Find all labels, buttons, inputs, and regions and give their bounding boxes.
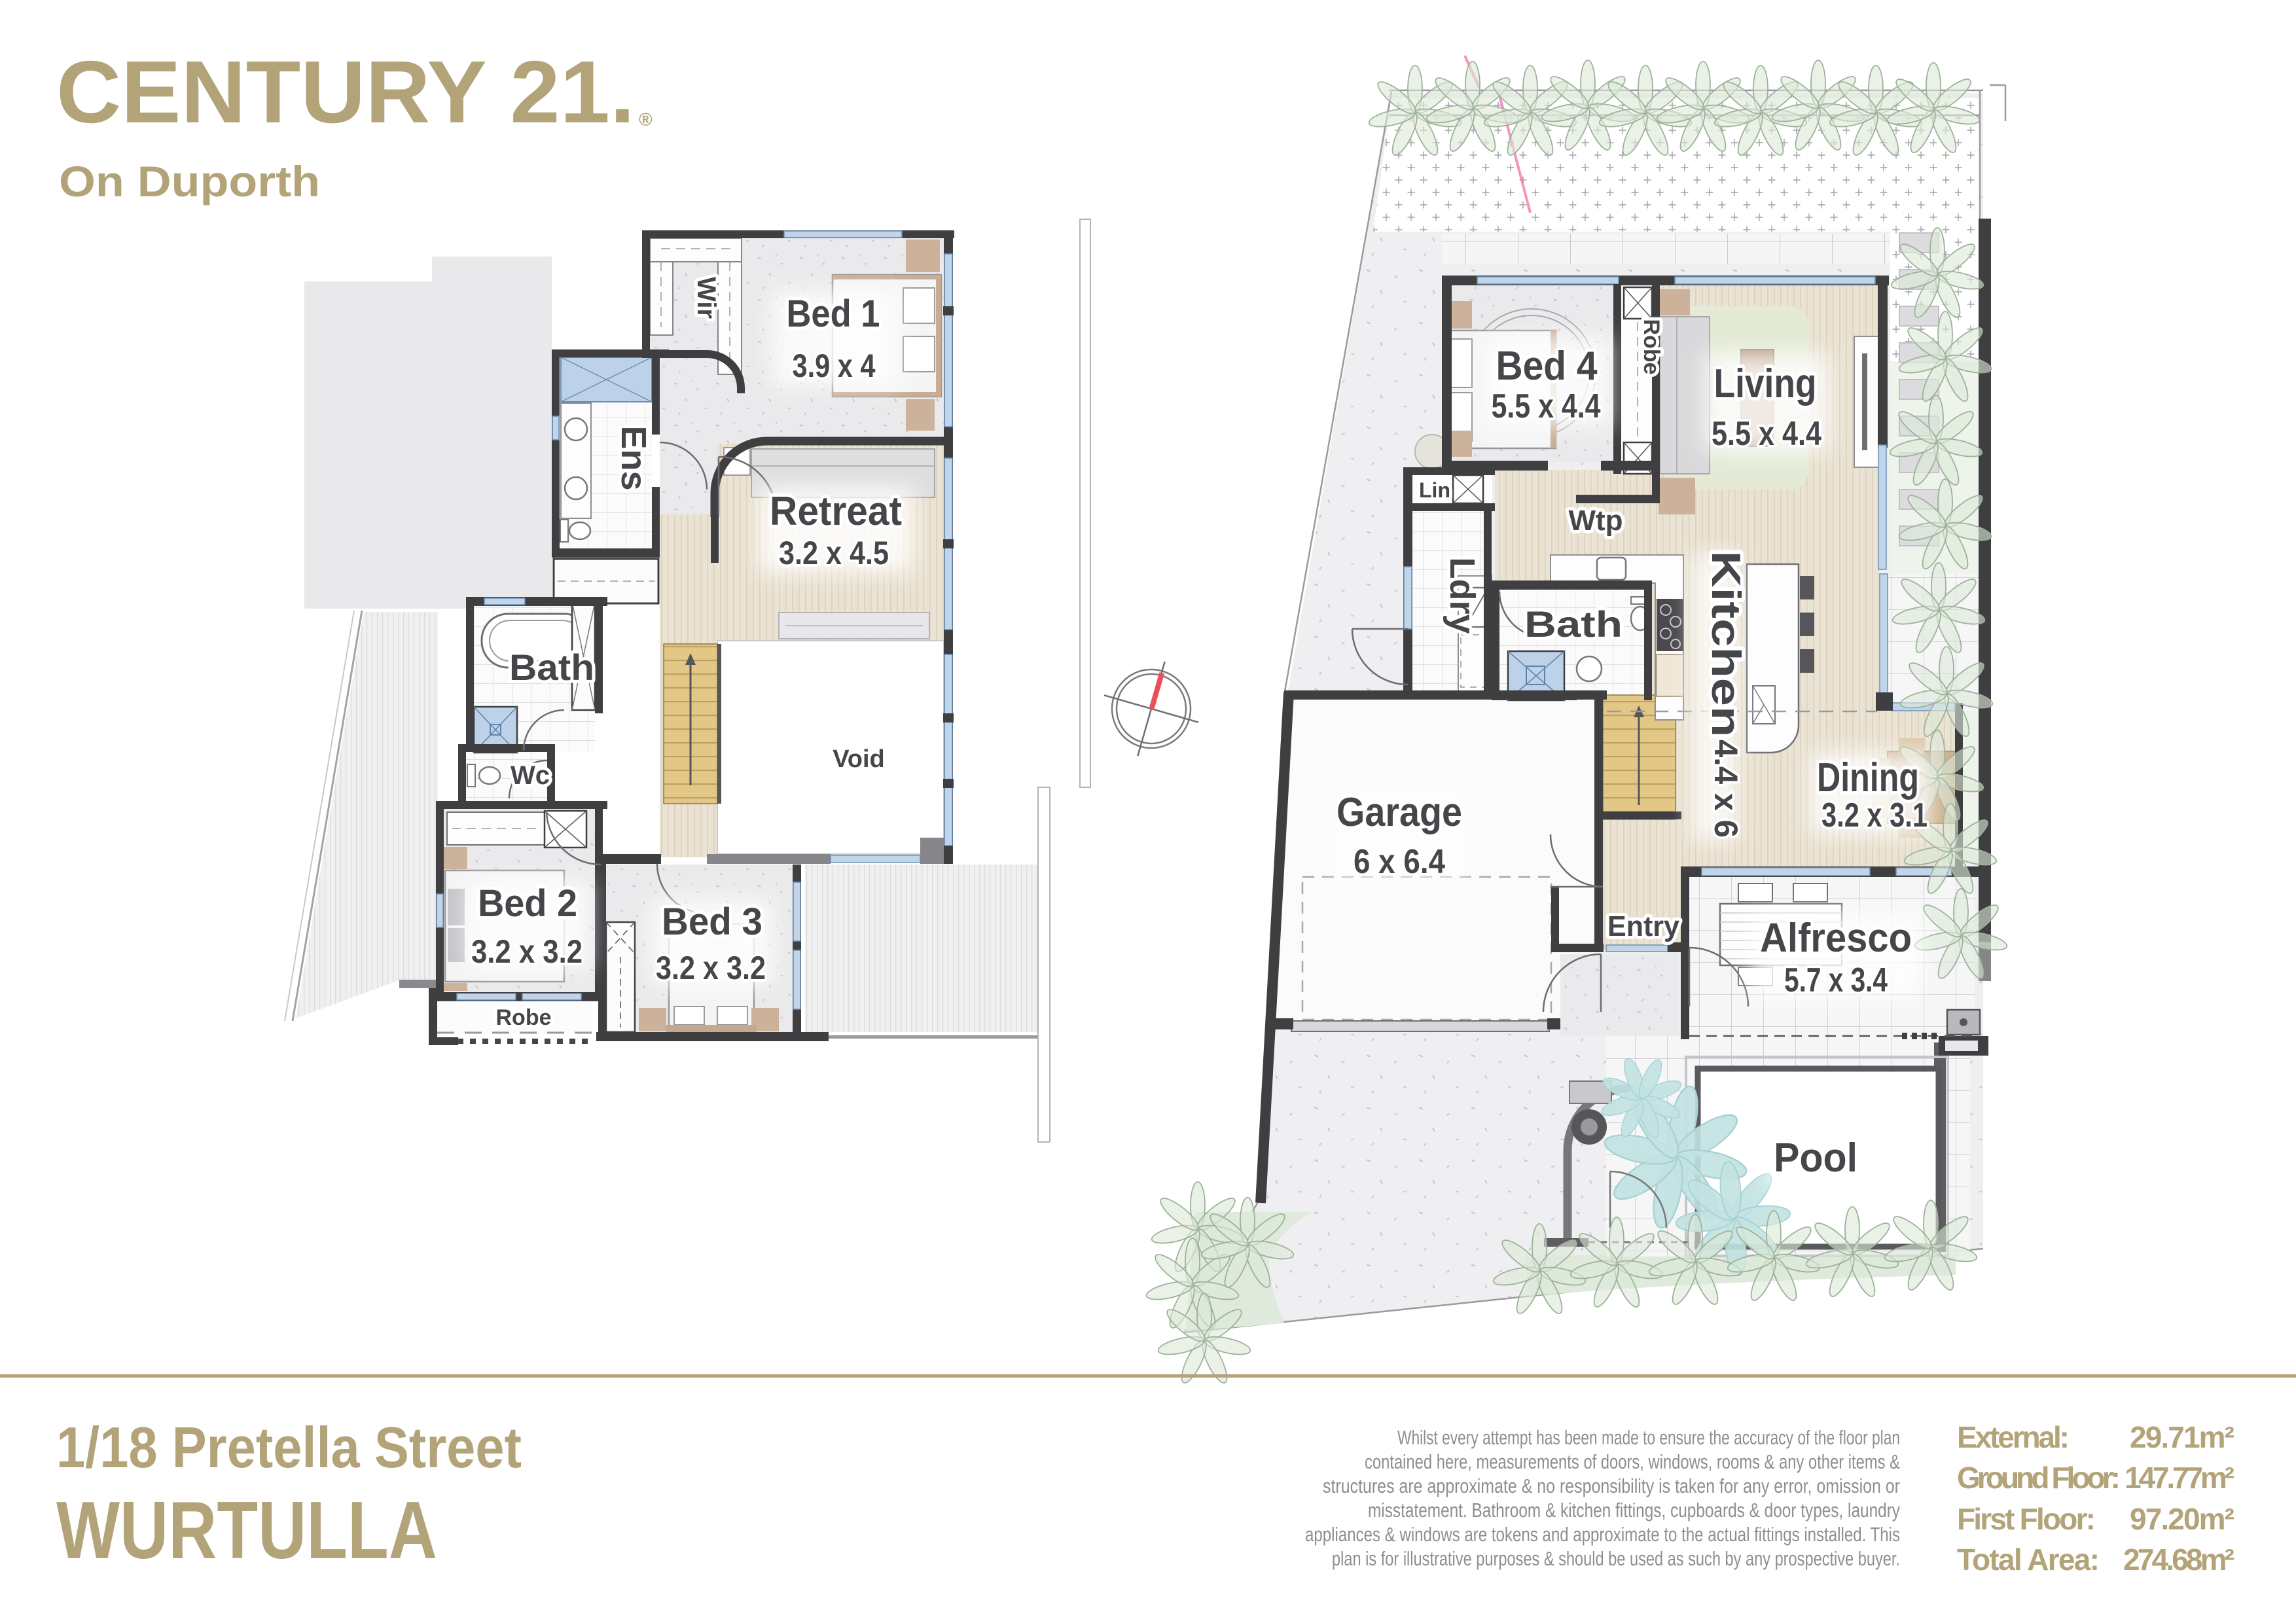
svg-text:structures are approximate & n: structures are approximate & no responsi… <box>1323 1474 1900 1497</box>
svg-text:29.71m²: 29.71m² <box>2130 1420 2234 1454</box>
svg-text:Ens: Ens <box>614 425 653 490</box>
svg-text:Pool: Pool <box>1774 1135 1857 1181</box>
svg-text:Robe: Robe <box>496 1005 552 1030</box>
svg-text:97.20m²: 97.20m² <box>2130 1502 2234 1536</box>
svg-text:First Floor:: First Floor: <box>1957 1502 2096 1536</box>
svg-text:Dining: Dining <box>1817 755 1919 800</box>
svg-text:Robe: Robe <box>1639 319 1664 375</box>
svg-text:Ground Floor:: Ground Floor: <box>1957 1461 2121 1495</box>
svg-text:Total Area:: Total Area: <box>1957 1543 2100 1577</box>
svg-text:Living: Living <box>1714 361 1817 406</box>
svg-text:Retreat: Retreat <box>770 489 902 534</box>
svg-text:On Duporth: On Duporth <box>59 157 320 205</box>
svg-text:Wc: Wc <box>511 761 550 790</box>
svg-text:WURTULLA: WURTULLA <box>56 1486 437 1576</box>
svg-text:Garage: Garage <box>1336 790 1462 835</box>
svg-text:3.2 x 3.2: 3.2 x 3.2 <box>471 933 583 970</box>
svg-text:®: ® <box>639 109 653 130</box>
svg-text:3.2 x 3.1: 3.2 x 3.1 <box>1821 796 1928 834</box>
svg-text:Wtp: Wtp <box>1568 505 1623 537</box>
svg-text:Bed 2: Bed 2 <box>478 882 577 925</box>
svg-text:Bath: Bath <box>509 647 594 688</box>
svg-text:3.2 x 4.5: 3.2 x 4.5 <box>779 535 889 571</box>
svg-text:4.4 x 6: 4.4 x 6 <box>1708 740 1744 838</box>
svg-text:274.68m²: 274.68m² <box>2123 1543 2234 1577</box>
svg-text:Bed 1: Bed 1 <box>787 293 880 335</box>
svg-text:contained here, measurements o: contained here, measurements of doors, w… <box>1365 1450 1900 1473</box>
svg-text:Ldry: Ldry <box>1443 557 1482 633</box>
svg-text:5.5 x 4.4: 5.5 x 4.4 <box>1712 415 1821 453</box>
svg-text:3.2 x 3.2: 3.2 x 3.2 <box>656 950 766 986</box>
svg-text:6 x 6.4: 6 x 6.4 <box>1354 843 1445 881</box>
svg-text:5.5 x 4.4: 5.5 x 4.4 <box>1492 387 1601 425</box>
svg-text:misstatement. Bathroom & kitch: misstatement. Bathroom & kitchen fitting… <box>1368 1499 1900 1522</box>
svg-text:Alfresco: Alfresco <box>1760 916 1912 961</box>
svg-text:Entry: Entry <box>1607 910 1680 942</box>
svg-text:Void: Void <box>833 745 885 773</box>
svg-text:3.9 x 4: 3.9 x 4 <box>793 348 876 384</box>
svg-text:appliances & windows are token: appliances & windows are tokens and appr… <box>1305 1523 1900 1546</box>
svg-text:1/18 Pretella Street: 1/18 Pretella Street <box>56 1415 522 1480</box>
svg-text:Bed 3: Bed 3 <box>662 901 762 943</box>
svg-text:Kitchen: Kitchen <box>1703 551 1748 738</box>
svg-text:Wir: Wir <box>692 277 721 319</box>
svg-text:Whilst every attempt has been: Whilst every attempt has been made to en… <box>1397 1426 1900 1449</box>
svg-text:147.77m²: 147.77m² <box>2125 1461 2234 1495</box>
svg-text:plan is for illustrative purpo: plan is for illustrative purposes & shou… <box>1332 1547 1900 1570</box>
svg-text:Bath: Bath <box>1524 603 1623 645</box>
svg-text:CENTURY 21.: CENTURY 21. <box>56 43 635 141</box>
svg-text:5.7 x 3.4: 5.7 x 3.4 <box>1784 961 1888 999</box>
svg-text:Lin: Lin <box>1419 478 1450 502</box>
svg-text:Bed 4: Bed 4 <box>1496 344 1598 389</box>
svg-text:External:: External: <box>1957 1420 2070 1454</box>
